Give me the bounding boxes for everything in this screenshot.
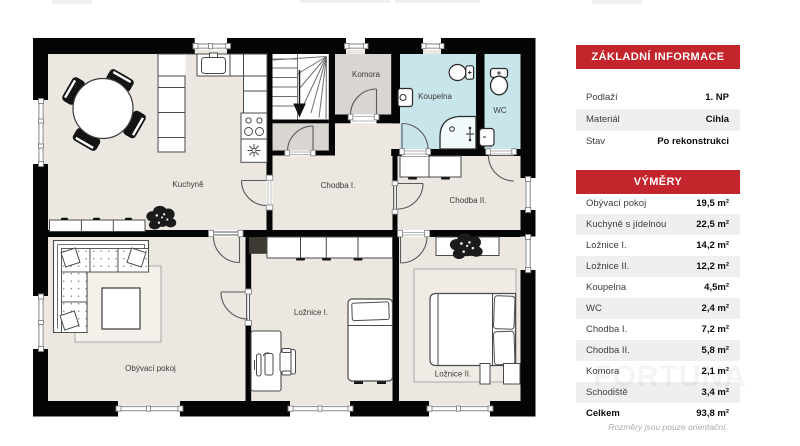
svg-text:Obývací pokoj: Obývací pokoj: [125, 364, 176, 373]
svg-text:Komora: Komora: [352, 70, 381, 79]
svg-text:Chodba I.: Chodba I.: [321, 181, 356, 190]
svg-text:WC: WC: [493, 106, 507, 115]
svg-text:Ložnice I.: Ložnice I.: [294, 308, 328, 317]
svg-text:Kuchyně: Kuchyně: [172, 180, 204, 189]
svg-text:Ložnice II.: Ložnice II.: [435, 370, 471, 379]
svg-text:Chodba II.: Chodba II.: [450, 196, 487, 205]
svg-text:Koupelna: Koupelna: [418, 92, 452, 101]
